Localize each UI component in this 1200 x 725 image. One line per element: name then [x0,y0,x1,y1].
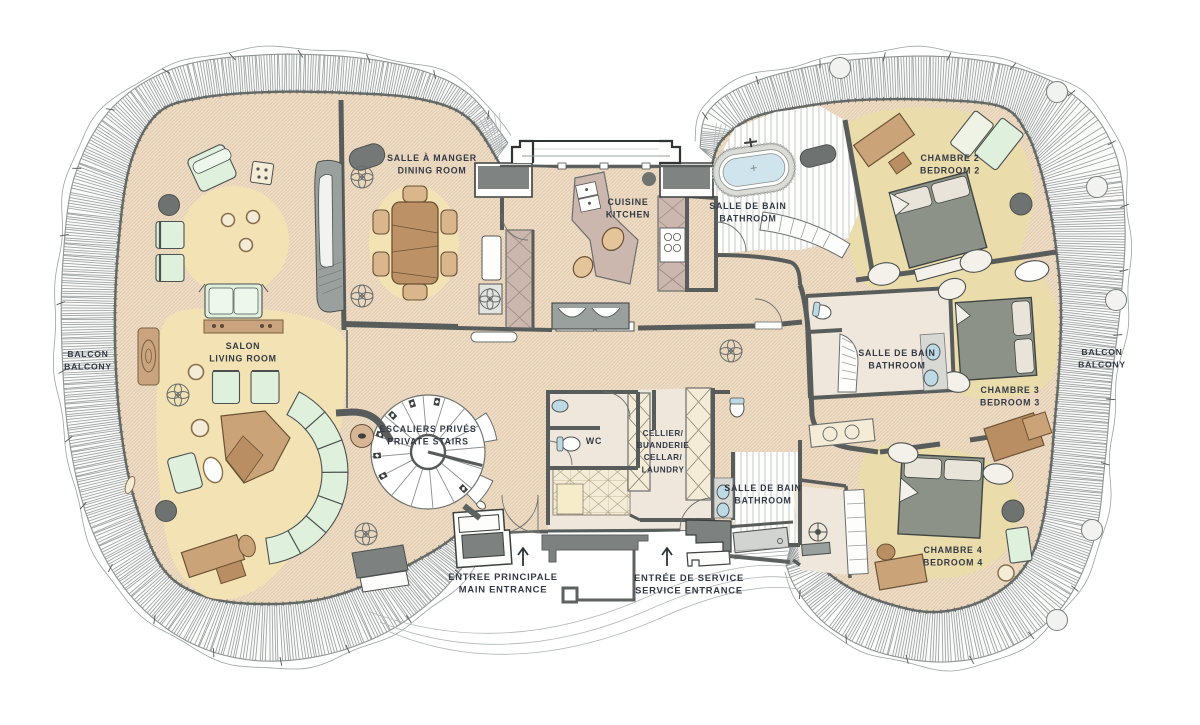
svg-text:WC: WC [586,436,602,446]
svg-text:ENTRÉE DE SERVICESERVICE ENTRA: ENTRÉE DE SERVICESERVICE ENTRANCE [634,572,744,595]
svg-text:ENTREE PRINCIPALEMAIN ENTRANCE: ENTREE PRINCIPALEMAIN ENTRANCE [448,571,557,594]
